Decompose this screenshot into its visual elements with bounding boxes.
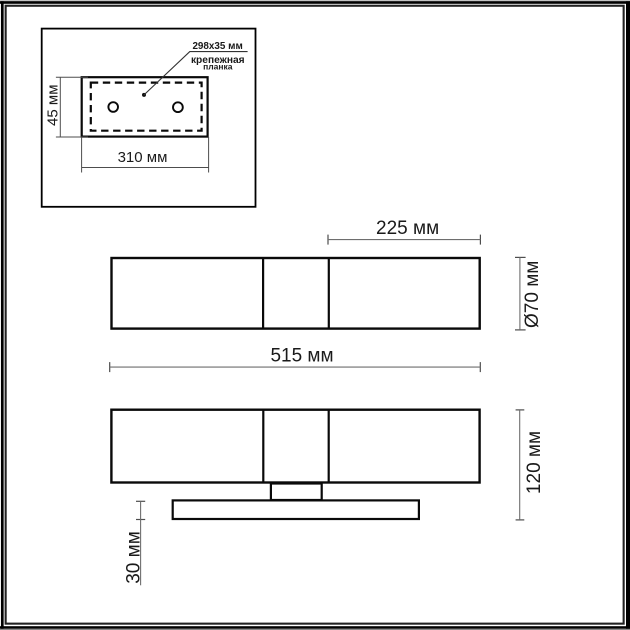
svg-text:225 мм: 225 мм bbox=[376, 218, 439, 239]
svg-text:Ø70 мм: Ø70 мм bbox=[522, 261, 543, 328]
svg-text:120 мм: 120 мм bbox=[524, 431, 545, 494]
svg-text:планка: планка bbox=[203, 62, 233, 72]
svg-text:310 мм: 310 мм bbox=[118, 149, 168, 166]
svg-text:45 мм: 45 мм bbox=[45, 84, 62, 125]
svg-text:515 мм: 515 мм bbox=[270, 346, 333, 367]
svg-text:298х35 мм: 298х35 мм bbox=[192, 41, 242, 52]
svg-text:30 мм: 30 мм bbox=[123, 531, 144, 584]
